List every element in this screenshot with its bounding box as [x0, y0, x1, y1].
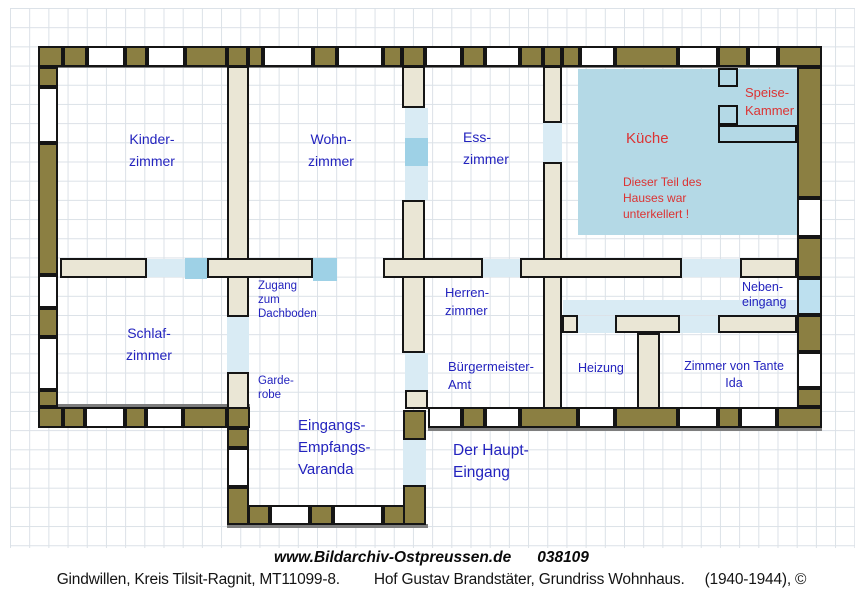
exterior-wall-block	[778, 46, 822, 67]
label-esszimmer: Ess- zimmer	[463, 127, 509, 170]
pantry-outline	[718, 105, 738, 125]
exterior-wall-block	[383, 505, 405, 525]
door-opening	[147, 259, 185, 277]
exterior-wall-block	[383, 46, 402, 67]
exterior-wall-block	[125, 46, 147, 67]
exterior-wall-block	[520, 46, 543, 67]
window-opening	[740, 407, 777, 428]
exterior-wall-block	[183, 407, 227, 428]
label-veranda: Eingangs- Empfangs- Varanda	[298, 415, 371, 480]
window-opening	[578, 407, 615, 428]
window-opening	[38, 275, 58, 308]
caption-website-line: www.Bildarchiv-Ostpreussen.de038109	[0, 549, 863, 567]
window-opening	[337, 46, 383, 67]
interior-wall	[740, 258, 797, 278]
window-opening	[333, 505, 383, 525]
window-opening	[38, 87, 58, 143]
exterior-wall-block	[403, 410, 426, 440]
window-opening	[87, 46, 125, 67]
exterior-wall-block	[462, 407, 485, 428]
interior-wall	[543, 162, 562, 409]
label-kellernote: Dieser Teil des Hauses war unterkellert …	[623, 174, 701, 223]
window-opening	[678, 407, 718, 428]
door-marker	[405, 138, 428, 166]
exterior-wall-block	[543, 46, 562, 67]
exterior-wall-block	[185, 46, 227, 67]
exterior-wall-block	[310, 505, 333, 525]
door-opening	[682, 259, 740, 277]
door-opening	[578, 316, 615, 333]
label-heizung: Heizung	[578, 361, 624, 376]
window-opening	[678, 46, 718, 67]
exterior-wall-block	[313, 46, 337, 67]
label-herrenzimmer: Herren- zimmer	[445, 284, 489, 320]
exterior-wall-block	[227, 487, 249, 525]
interior-wall	[615, 315, 680, 333]
pantry-outline	[718, 68, 738, 87]
door-opening	[483, 259, 520, 277]
exterior-wall-block	[38, 308, 58, 337]
pantry-outline	[718, 125, 797, 143]
window-opening	[146, 407, 183, 428]
exterior-wall-block	[38, 407, 63, 428]
exterior-wall-block	[520, 407, 578, 428]
floorplan-drawing: Kinder- zimmerWohn- zimmerEss- zimmerKüc…	[0, 0, 863, 548]
door-opening	[227, 317, 249, 372]
window-opening	[580, 46, 615, 67]
exterior-wall-block	[63, 407, 85, 428]
exterior-wall-block	[125, 407, 146, 428]
exterior-wall-block	[38, 143, 58, 275]
exterior-wall-block	[797, 388, 822, 407]
window-opening	[428, 407, 462, 428]
caption-archive-number: 038109	[537, 549, 589, 566]
exterior-wall-block	[38, 46, 63, 67]
caption-website: www.Bildarchiv-Ostpreussen.de	[274, 549, 511, 566]
interior-wall	[227, 66, 249, 317]
caption-location: Gindwillen, Kreis Tilsit-Ragnit, MT11099…	[57, 571, 340, 588]
label-tanteida: Zimmer von Tante Ida	[684, 358, 784, 392]
exterior-wall-block	[248, 46, 263, 67]
label-speisekammer: Speise- Kammer	[745, 84, 794, 120]
label-garderobe: Garde- robe	[258, 375, 294, 403]
exterior-wall-block	[462, 46, 485, 67]
caption-years: (1940-1944), ©	[705, 571, 807, 588]
exterior-wall-block	[402, 46, 425, 67]
exterior-wall-block	[797, 67, 822, 198]
exterior-wall-block	[797, 237, 822, 278]
interior-wall	[562, 315, 578, 333]
exterior-wall-block	[403, 485, 426, 525]
label-wohnzimmer: Wohn- zimmer	[308, 129, 354, 172]
exterior-wall-block	[777, 407, 822, 428]
interior-wall	[637, 333, 660, 409]
door-marker	[185, 258, 207, 279]
exterior-wall-block	[797, 315, 822, 352]
interior-wall	[520, 258, 682, 278]
window-opening	[147, 46, 185, 67]
door-opening	[403, 440, 426, 485]
label-nebeneingang: Neben- eingang	[742, 280, 787, 310]
caption-subject: Hof Gustav Brandstäter, Grundriss Wohnha…	[374, 571, 685, 588]
window-opening	[270, 505, 310, 525]
interior-wall	[227, 372, 249, 409]
interior-wall	[402, 66, 425, 108]
window-opening	[797, 352, 822, 388]
interior-wall	[207, 258, 313, 278]
door-marker	[313, 258, 337, 281]
exterior-wall-block	[718, 46, 748, 67]
window-opening	[485, 407, 520, 428]
window-opening	[797, 198, 822, 237]
exterior-wall-block	[227, 428, 249, 448]
interior-wall	[543, 66, 562, 123]
label-schlafzimmer: Schlaf- zimmer	[126, 323, 172, 366]
label-kueche: Küche	[626, 128, 669, 149]
window-opening	[38, 337, 58, 390]
label-kinderzimmer: Kinder- zimmer	[129, 129, 175, 172]
window-opening	[227, 448, 249, 487]
interior-wall	[60, 258, 147, 278]
exterior-wall-block	[562, 46, 580, 67]
floorplan-image: Kinder- zimmerWohn- zimmerEss- zimmerKüc…	[0, 0, 863, 600]
exterior-wall-block	[718, 407, 740, 428]
exterior-wall-block	[227, 407, 250, 428]
exterior-wall-block	[615, 46, 678, 67]
exterior-wall-block	[615, 407, 678, 428]
side-entrance-door	[797, 278, 822, 315]
exterior-wall-block	[38, 67, 58, 87]
door-opening	[405, 353, 428, 390]
window-opening	[425, 46, 462, 67]
door-opening	[543, 123, 562, 162]
exterior-wall-block	[63, 46, 87, 67]
window-opening	[748, 46, 778, 67]
door-opening	[680, 316, 718, 333]
exterior-wall-block	[248, 505, 270, 525]
exterior-wall-block	[38, 390, 58, 407]
window-opening	[485, 46, 520, 67]
label-zugang: Zugang zum Dachboden	[258, 280, 317, 321]
window-opening	[263, 46, 313, 67]
interior-wall	[718, 315, 797, 333]
label-buergermeisteramt: Bürgermeister- Amt	[448, 358, 534, 394]
exterior-wall-block	[227, 46, 248, 67]
interior-wall	[405, 390, 428, 409]
window-opening	[85, 407, 125, 428]
caption-detail-line: Gindwillen, Kreis Tilsit-Ragnit, MT11099…	[0, 571, 863, 589]
interior-wall	[383, 258, 483, 278]
label-haupteingang: Der Haupt- Eingang	[453, 440, 529, 485]
